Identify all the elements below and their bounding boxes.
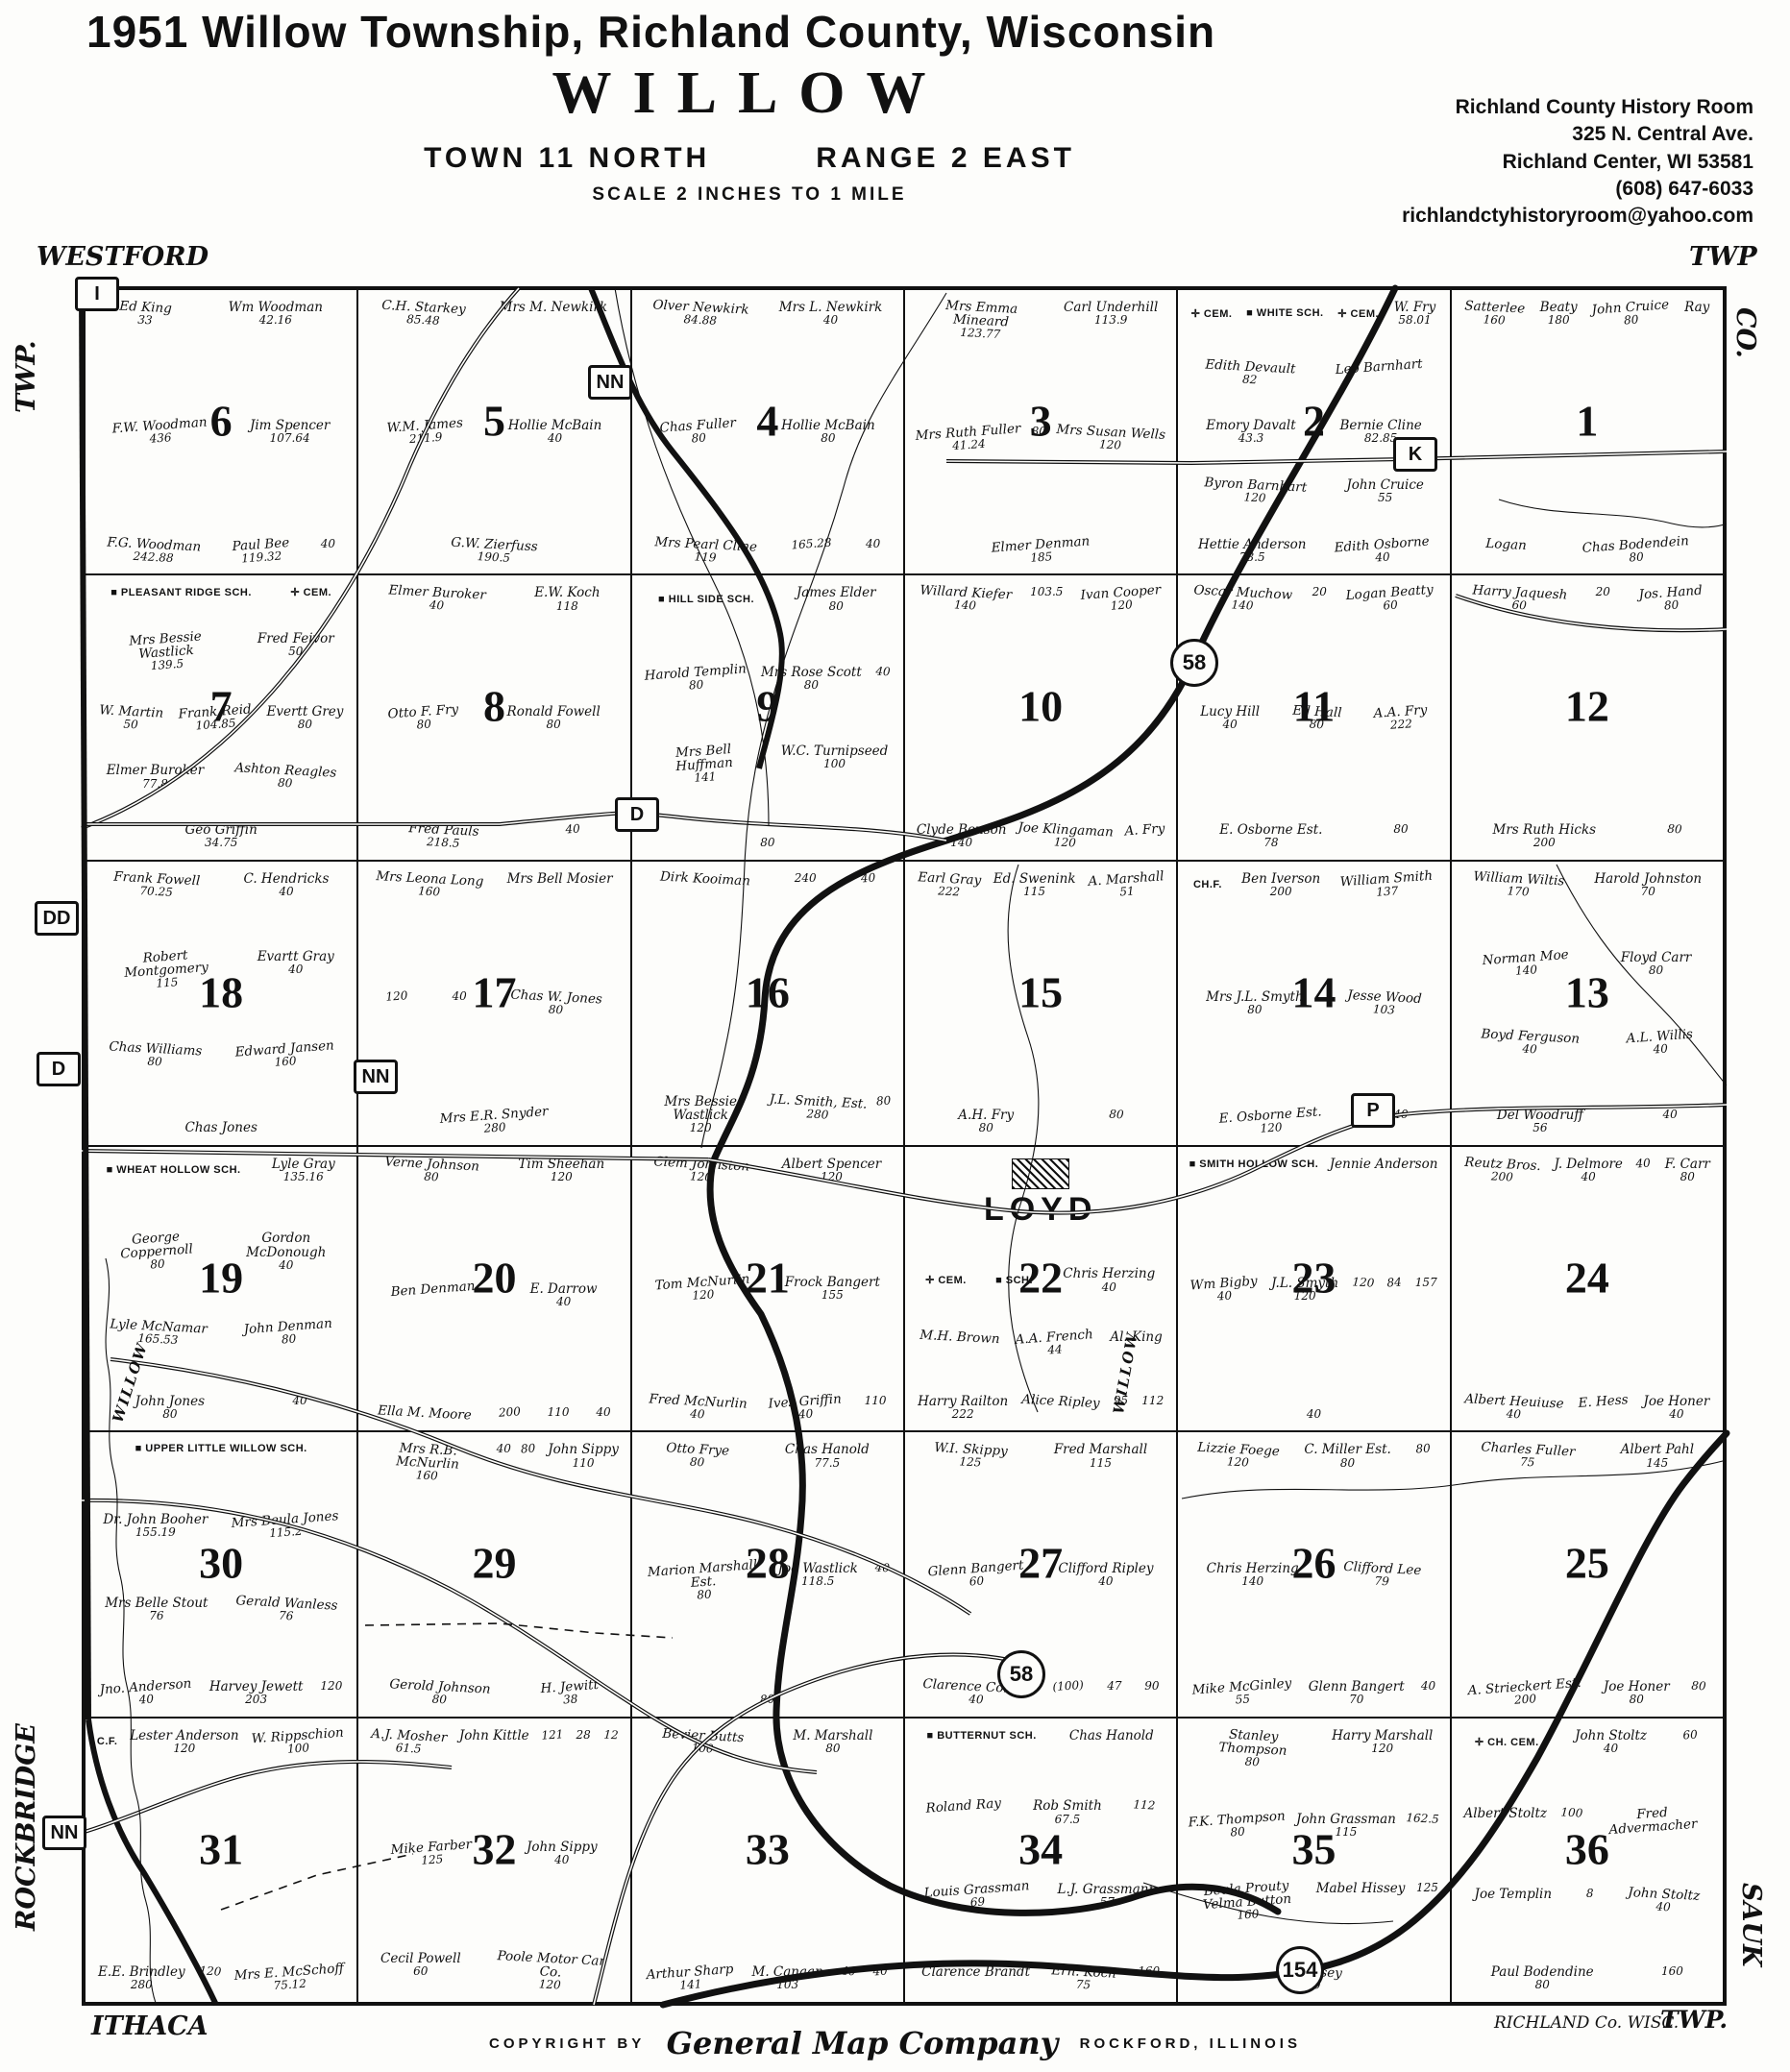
parcel-list: Olver Newkirk84.88Mrs L. Newkirk40Chas F… xyxy=(632,290,903,573)
parcel-list: William Wiltis170Harold Johnston70Norman… xyxy=(1452,862,1723,1145)
parcel-list: ✛ CEM.■ WHITE SCH.✛ CEM.W. Fry58.01Edith… xyxy=(1178,290,1449,573)
parcel-label: Carl Underhill113.9 xyxy=(1064,301,1158,340)
parcel-label: John Cruice80 xyxy=(1591,298,1670,329)
parcel-label: Edith Devault82 xyxy=(1204,357,1295,388)
acreage-value: 203 xyxy=(209,1694,304,1706)
acreage-label: 40 xyxy=(872,1965,889,1992)
parcel-label: Jim Spencer107.64 xyxy=(250,419,330,445)
acreage-value: 113.9 xyxy=(1064,314,1158,327)
acreage-value: 119.32 xyxy=(233,549,290,566)
section-8: 8Elmer Buroker40E.W. Koch118Otto F. Fry8… xyxy=(357,574,630,860)
owner-name: J.L. Smyth xyxy=(1271,1277,1338,1290)
parcel-label: Jennie Anderson xyxy=(1330,1158,1438,1171)
owner-name: Mrs L. Newkirk xyxy=(779,301,883,314)
acreage-value: 80 xyxy=(507,719,601,731)
acreage-value: 40 xyxy=(527,1854,598,1866)
owner-name: Mrs J.L. Smyth xyxy=(1206,990,1304,1004)
parcel-label: Mrs Pearl Cline119 xyxy=(654,535,758,566)
section-9: 9■ HILL SIDE SCH.James Elder80Harold Tem… xyxy=(631,574,904,860)
acreage-label: 8 xyxy=(1586,1888,1594,1914)
owner-name: Emory Davalt xyxy=(1206,419,1295,432)
parcel-label: Mrs Bell Huffman141 xyxy=(646,741,764,788)
acreage-value: 80 xyxy=(1206,1004,1304,1016)
acreage-value: 160 xyxy=(1138,1965,1160,1978)
owner-name: Del Woodruff xyxy=(1497,1109,1583,1122)
owner-name: A.H. Fry xyxy=(958,1109,1014,1122)
owner-name: Hollie McBain xyxy=(781,419,875,432)
parcel-label: Jno. Anderson40 xyxy=(99,1677,192,1709)
acreage-label: 162.5 xyxy=(1405,1812,1439,1840)
parcel-label: John Grassman115 xyxy=(1296,1813,1396,1839)
parcel-label: Rob Smith67.5 xyxy=(1033,1799,1102,1825)
owner-name: Paul Bodendine xyxy=(1491,1965,1594,1979)
acreage-label: 80 xyxy=(1393,823,1408,849)
parcel-label: Chas Jones xyxy=(184,1121,257,1134)
parcel-label: W.I. Skippy125 xyxy=(933,1441,1008,1471)
acreage-label: 80 xyxy=(521,1443,538,1483)
acreage-value: 77.8 xyxy=(107,778,205,791)
parcel-label: E.E. Brindley280 xyxy=(98,1965,185,1991)
route-shield-NN-mid: NN xyxy=(354,1060,398,1094)
acreage-value: 118.5 xyxy=(778,1575,858,1588)
acreage-value: 78 xyxy=(1219,837,1322,849)
acreage-label: 125 xyxy=(1416,1882,1438,1921)
owner-name: A. Fry xyxy=(1124,821,1165,838)
parcel-label: James Elder80 xyxy=(797,586,876,612)
owner-name: Fred Advermacher xyxy=(1594,1803,1711,1839)
parcel-label: Arthur Sharp141 xyxy=(646,1962,735,1994)
acreage-value: 103.5 xyxy=(1030,586,1063,598)
parcel-label: C.H. Starkey85.48 xyxy=(380,299,466,329)
parcel-label: Hollie McBain40 xyxy=(508,419,602,445)
cemetery-icon-label: ✛ CEM. xyxy=(290,586,331,598)
town-label: TOWN 11 NORTH xyxy=(424,142,710,175)
acreage-value: 40 xyxy=(1575,1743,1647,1755)
acreage-value: 200 xyxy=(1241,886,1320,898)
acreage-value: 80 xyxy=(521,1443,536,1456)
acreage-label: 12 xyxy=(602,1728,619,1755)
parcel-label: Joe Templin xyxy=(1475,1888,1553,1914)
parcel-label: Glenn Bangert70 xyxy=(1309,1680,1405,1706)
parcel-label: Ben Denman xyxy=(391,1280,478,1311)
parcel-label: Reutz Bros.200 xyxy=(1463,1156,1541,1185)
parcel-label: Clarence Brandt xyxy=(921,1965,1030,1991)
parcel-label: W. Fry58.01 xyxy=(1394,301,1436,327)
acreage-value: 90 xyxy=(1144,1680,1159,1693)
parcel-label: W.C. Turnipseed100 xyxy=(781,744,889,784)
map-company-name: General Map Company xyxy=(667,2025,1059,2061)
parcel-label: Edith Osborne40 xyxy=(1334,534,1431,567)
school-icon-label: ■ SCH. xyxy=(995,1275,1033,1286)
parcel-label: Chas Williams80 xyxy=(108,1040,202,1071)
parcel-label: Byron Barnhart120 xyxy=(1203,475,1307,506)
parcel-label: Otto F. Fry80 xyxy=(387,702,459,733)
owner-name: Tim Sheehan xyxy=(518,1158,604,1171)
parcel-label: Evartt Gray40 xyxy=(257,950,334,989)
parcel-list: CH.F.Ben Iverson200William Smith137Mrs J… xyxy=(1178,862,1449,1145)
parcel-label: Chris Herzing40 xyxy=(1063,1267,1155,1293)
parcel-label: Clifford Lee79 xyxy=(1343,1560,1422,1590)
acreage-label: 40 xyxy=(565,822,581,849)
acreage-value: 145 xyxy=(1621,1457,1694,1470)
parcel-label: Geo Griffin34.75 xyxy=(185,823,257,849)
acreage-value: 107.64 xyxy=(250,432,330,445)
acreage-value: 40 xyxy=(1421,1680,1435,1693)
section-15: 15Earl Gray222Ed. Swenink115A. Marshall5… xyxy=(904,861,1177,1146)
contact-line: richlandctyhistoryroom@yahoo.com xyxy=(1402,203,1753,230)
section-33: 33Bevier Butts100M. Marshall80Arthur Sha… xyxy=(631,1718,904,2003)
owner-name: W. Fry xyxy=(1394,301,1436,314)
owner-name: Mrs Rose Scott xyxy=(761,666,862,679)
owner-name: E. Darrow xyxy=(530,1282,598,1296)
parcel-label: Mrs L. Newkirk40 xyxy=(779,301,883,327)
section-16: 16Dirk Kooiman24040Mrs Bessie Wastlick12… xyxy=(631,861,904,1146)
acreage-value: 280 xyxy=(98,1979,185,1991)
owner-name: John Sippy xyxy=(527,1840,598,1854)
acreage-value: 40 xyxy=(866,538,880,550)
acreage-value: 40 xyxy=(860,871,875,885)
acreage-value: 60 xyxy=(380,1965,461,1978)
acreage-label: 40 xyxy=(1421,1680,1435,1706)
parcel-list: Ed King33Wm Woodman42.16F.W. Woodman436J… xyxy=(86,290,356,573)
route-shield-DD: DD xyxy=(35,901,79,936)
acreage-label: 160 xyxy=(1661,1965,1683,1991)
edge-label-twp-topright: TWP xyxy=(1689,242,1757,272)
owner-name: Clarence Brandt xyxy=(921,1965,1030,1979)
owner-name: M. Canaan xyxy=(752,1965,823,1979)
parcel-label: F.K. Thompson80 xyxy=(1189,1809,1287,1841)
acreage-value: 120 xyxy=(199,1965,222,1979)
parcel-label: A.A. French44 xyxy=(1015,1329,1094,1359)
owner-name: Evertt Grey xyxy=(266,705,343,719)
acreage-label: 40 xyxy=(321,538,335,564)
parcel-list: Otto Frye80Chas Hanold77.5Marion Marshal… xyxy=(632,1432,903,1716)
owner-name: Harry Railton xyxy=(918,1395,1008,1408)
owner-name: Floyd Carr xyxy=(1621,951,1692,964)
parcel-label: Olver Newkirk84.88 xyxy=(652,298,750,329)
owner-name: Mrs Bell Mosier xyxy=(507,872,613,886)
parcel-label: Mabel Hissey xyxy=(1316,1882,1406,1921)
parcel-list: Frank Fowell70.25C. Hendricks40Robert Mo… xyxy=(86,862,356,1145)
parcel-label: Jesse Wood103 xyxy=(1347,988,1423,1018)
owner-name: Elmer Buroker xyxy=(107,764,205,777)
parcel-label: Lizzie Foege120 xyxy=(1196,1441,1280,1471)
route-shield-D-west: D xyxy=(37,1052,81,1086)
parcel-label: Ed Hall80 xyxy=(1291,703,1342,731)
acreage-value: 80 xyxy=(1304,1457,1390,1470)
acreage-value: 80 xyxy=(797,600,876,613)
contact-block: Richland County History Room 325 N. Cent… xyxy=(1402,94,1753,231)
parcel-label: John Jones80 xyxy=(135,1395,205,1421)
parcel-label: Lyle McNamar165.53 xyxy=(109,1317,208,1348)
parcel-label: H. Jewitt38 xyxy=(540,1678,600,1708)
acreage-value: 80 xyxy=(1393,823,1408,836)
section-grid: 6Ed King33Wm Woodman42.16F.W. Woodman436… xyxy=(85,289,1724,2003)
acreage-value: 56 xyxy=(1497,1122,1583,1134)
acreage-value: 40 xyxy=(1063,1281,1155,1294)
acreage-label: 200 xyxy=(498,1405,521,1421)
section-36: 36✛ CH. CEM.John Stoltz4060Albert Stoltz… xyxy=(1451,1718,1724,2003)
acreage-value: 67.5 xyxy=(1033,1814,1102,1826)
section-6: 6Ed King33Wm Woodman42.16F.W. Woodman436… xyxy=(85,289,357,574)
route-shield-K: K xyxy=(1393,437,1437,472)
parcel-label: Lester Anderson120 xyxy=(130,1729,238,1755)
acreage-value: 8 xyxy=(1586,1888,1594,1900)
parcel-label: A.A. Fry222 xyxy=(1373,703,1429,733)
edge-label-twp-left: TWP. xyxy=(12,340,41,413)
acreage-value: 76 xyxy=(105,1610,208,1622)
parcel-list: C.F.Lester Anderson120W. Rippschion100E.… xyxy=(86,1719,356,2002)
parcel-label: Albert Spencer120 xyxy=(782,1158,881,1183)
parcel-label: Chas Hanold xyxy=(1069,1729,1154,1743)
owner-name: Harold Johnston xyxy=(1594,872,1702,886)
acreage-value: 80 xyxy=(876,1095,892,1109)
acreage-value: 20 xyxy=(1312,586,1327,598)
parcel-label: Mrs Leona Long160 xyxy=(376,869,484,901)
parcel-label: Mrs R.B. McNurlin160 xyxy=(369,1440,486,1485)
owner-name: Hollie McBain xyxy=(508,419,602,432)
parcel-label: Chas Bodendein80 xyxy=(1582,534,1690,567)
acreage-value: 80 xyxy=(1491,1979,1594,1991)
cemetery-icon-label: ✛ CEM. xyxy=(1191,307,1233,320)
acreage-value: 70 xyxy=(1309,1694,1405,1706)
acreage-value: 28 xyxy=(576,1729,591,1742)
acreage-value: 50 xyxy=(257,646,334,658)
section-28: 28Otto Frye80Chas Hanold77.5Marion Marsh… xyxy=(631,1431,904,1717)
acreage-value: 40 xyxy=(229,1259,344,1272)
parcel-label: A. Marshall51 xyxy=(1088,869,1165,900)
acreage-value: 40 xyxy=(872,1965,888,1979)
edge-label-co-right: CO. xyxy=(1730,307,1760,358)
parcel-list: Lizzie Foege120C. Miller Est.8080Chris H… xyxy=(1178,1432,1449,1716)
acreage-value: 40 xyxy=(497,1443,511,1455)
owner-name: C. Miller Est. xyxy=(1304,1443,1390,1456)
acreage-label: 120 xyxy=(198,1965,221,1992)
acreage-value: 34.75 xyxy=(185,837,257,849)
parcel-label: Mike McGinley55 xyxy=(1191,1676,1292,1709)
acreage-label: 47 xyxy=(1107,1680,1121,1706)
parcel-label: Mrs Susan Wells120 xyxy=(1056,423,1166,454)
parcel-label: Albert Stoltz xyxy=(1463,1807,1547,1834)
parcel-label: John Sippy110 xyxy=(548,1443,619,1482)
parcel-label: A.J. Mosher61.5 xyxy=(370,1727,447,1757)
owner-name: Chris Herzing xyxy=(1207,1562,1299,1575)
parcel-label: Marion Marshall Est.80 xyxy=(645,1557,763,1604)
page-title: 1951 Willow Township, Richland County, W… xyxy=(86,6,1215,58)
acreage-value: 40 xyxy=(779,314,883,327)
parcel-label: Glenn Bangert60 xyxy=(927,1558,1025,1591)
acreage-label: 120 xyxy=(1351,1276,1374,1303)
parcel-label: Chas Hanold77.5 xyxy=(785,1443,870,1469)
contact-line: Richland Center, WI 53581 xyxy=(1402,149,1753,176)
parcel-list: Oscar Muchow14020Logan Beatty60Lucy Hill… xyxy=(1178,575,1449,859)
parcel-label: Clyde Benson140 xyxy=(917,823,1007,849)
parcel-list: LOYD✛ CEM.■ SCH.Chris Herzing40M.H. Brow… xyxy=(905,1147,1176,1430)
acreage-value: 80 xyxy=(793,1743,872,1755)
acreage-value: 40 xyxy=(596,1406,610,1419)
section-22: 22LOYD✛ CEM.■ SCH.Chris Herzing40M.H. Br… xyxy=(904,1146,1177,1431)
section-3: 3Mrs Emma Mineard123.77Carl Underhill113… xyxy=(904,289,1177,574)
owner-name: Albert Stoltz xyxy=(1463,1807,1547,1820)
owner-name: Frock Bangert xyxy=(785,1276,880,1289)
owner-name: Cecil Powell xyxy=(380,1952,461,1965)
acreage-value: (100) xyxy=(1052,1679,1084,1694)
acreage-value: 157 xyxy=(1415,1277,1437,1289)
acreage-value: 40 xyxy=(1393,1109,1408,1121)
acreage-label: 80 xyxy=(1691,1680,1707,1707)
parcel-label: Mrs M. Newkirk xyxy=(500,301,607,327)
acreage-label: 84 xyxy=(1386,1277,1403,1304)
parcel-list: Willard Kiefer140103.5Ivan Cooper120Clyd… xyxy=(905,575,1176,859)
parcel-label: Gerold Johnson80 xyxy=(389,1677,492,1708)
acreage-label: 160 xyxy=(1138,1965,1160,1991)
parcel-label: Norman Moe140 xyxy=(1482,948,1570,980)
acreage-value: 115 xyxy=(993,886,1076,898)
owner-name: Joe Templin xyxy=(1475,1888,1553,1901)
acreage-value: 40 xyxy=(1200,719,1260,731)
parcel-label: Oscar Muchow140 xyxy=(1193,584,1293,615)
parcel-label: Clifford Ripley40 xyxy=(1058,1562,1153,1588)
acreage-value: 47 xyxy=(1107,1680,1121,1693)
parcel-label: Floyd Carr80 xyxy=(1621,951,1692,977)
acreage-label: 103.5 xyxy=(1030,586,1063,612)
cemetery-icon-label: ✛ CEM. xyxy=(1337,307,1379,320)
parcel-label: Satterlee160 xyxy=(1464,299,1526,328)
footer: COPYRIGHT BY General Map Company ROCKFOR… xyxy=(0,2025,1790,2061)
acreage-value: 12 xyxy=(603,1728,619,1741)
acreage-label: (100) xyxy=(1052,1679,1085,1707)
parcel-label: Evertt Grey80 xyxy=(266,705,343,731)
owner-name: Roland Ray xyxy=(925,1797,1001,1816)
acreage-value: 103 xyxy=(752,1979,823,1991)
parcel-label: Roland Ray xyxy=(925,1797,1002,1828)
acreage-value: 40 xyxy=(1643,1408,1709,1421)
owner-name: Ben Iverson xyxy=(1241,872,1320,886)
owner-name: Clyde Benson xyxy=(917,823,1007,837)
acreage-label: 80 xyxy=(760,1694,775,1707)
acreage-label: 40 xyxy=(1393,1109,1408,1134)
acreage-value: 162.5 xyxy=(1406,1812,1439,1825)
parcel-label: Harold Johnston70 xyxy=(1594,872,1702,898)
owner-name: Wm Woodman xyxy=(229,301,323,314)
school-icon-label: ■ WHITE SCH. xyxy=(1246,307,1323,319)
parcel-label: Ives Griffin40 xyxy=(769,1392,844,1423)
acreage-value: 58.01 xyxy=(1394,314,1436,327)
contact-line: (608) 647-6033 xyxy=(1402,176,1753,203)
parcel-label: Earl Gray222 xyxy=(917,870,981,899)
parcel-list: Mrs R.B. McNurlin1604080John Sippy110Ger… xyxy=(358,1432,629,1716)
owner-name: John Cruice xyxy=(1346,478,1424,492)
section-13: 13William Wiltis170Harold Johnston70Norm… xyxy=(1451,861,1724,1146)
parcel-label: E.W. Koch118 xyxy=(534,586,600,612)
owner-name: Evartt Gray xyxy=(257,950,334,963)
parcel-list: ■ HILL SIDE SCH.James Elder80Harold Temp… xyxy=(632,575,903,859)
acreage-label: 40 xyxy=(860,871,875,886)
parcel-label: A.L. Willis40 xyxy=(1626,1028,1694,1059)
owner-name: Alice Ripley xyxy=(1021,1392,1100,1409)
parcel-label: Frank Reid104.85 xyxy=(178,702,253,733)
parcel-label: E. Hess xyxy=(1578,1393,1630,1422)
acreage-label: 40 xyxy=(873,1561,890,1601)
acreage-label: 40 xyxy=(866,538,880,564)
acreage-value: 80 xyxy=(266,719,343,731)
parcel-list: ✛ CH. CEM.John Stoltz4060Albert Stoltz10… xyxy=(1452,1719,1723,2002)
parcel-list: Dirk Kooiman24040Mrs Bessie Wastlick120J… xyxy=(632,862,903,1145)
owner-name: M.H. Brown xyxy=(920,1329,1000,1347)
parcel-label: Elmer Denman185 xyxy=(991,534,1091,567)
parcel-label: W.M. James211.9 xyxy=(386,417,464,448)
acreage-value: 120 xyxy=(1271,1290,1338,1303)
scale-note: SCALE 2 INCHES TO 1 MILE xyxy=(365,184,1134,206)
plat-map-sheet: 1951 Willow Township, Richland County, W… xyxy=(0,0,1790,2072)
parcel-label: Mrs Bessie Wastlick120 xyxy=(643,1095,758,1134)
acreage-value: 222 xyxy=(918,1408,1008,1421)
parcel-label: Ben Iverson200 xyxy=(1241,872,1320,898)
acreage-value: 40 xyxy=(1662,1109,1677,1121)
parcel-label: Lyle Gray135.16 xyxy=(272,1158,335,1183)
acreage-value: 20 xyxy=(1596,586,1610,598)
section-32: 32A.J. Mosher61.5John Kittle1212812Mike … xyxy=(357,1718,630,2003)
section-29: 29Mrs R.B. McNurlin1604080John Sippy110G… xyxy=(357,1431,630,1717)
section-18: 18Frank Fowell70.25C. Hendricks40Robert … xyxy=(85,861,357,1146)
parcel-label: Paul Bee119.32 xyxy=(232,536,290,566)
section-31: 31C.F.Lester Anderson120W. Rippschion100… xyxy=(85,1718,357,2003)
parcel-label: Del Woodruff56 xyxy=(1497,1109,1583,1134)
contact-line: Richland County History Room xyxy=(1402,94,1753,121)
parcel-label: Ashton Reagles80 xyxy=(233,762,336,792)
acreage-value: 40 xyxy=(841,1965,856,1978)
owner-name: C. Hendricks xyxy=(243,872,329,886)
parcel-list: Verne Johnson80Tim Sheehan120Ben DenmanE… xyxy=(358,1147,629,1430)
acreage-value: 112 xyxy=(1141,1395,1164,1407)
acreage-label: 120 xyxy=(385,989,409,1016)
edge-label-westford: WESTFORD xyxy=(37,242,208,272)
parcel-label: Albert Pahl145 xyxy=(1621,1443,1694,1469)
landmark-label: CH.F. xyxy=(1193,879,1222,890)
parcel-label: Wm Woodman42.16 xyxy=(229,301,323,327)
parcel-label: F. Carr80 xyxy=(1665,1158,1710,1183)
route-shield-I: I xyxy=(75,277,119,311)
parcel-label: L.J. Grassmann57 xyxy=(1058,1883,1158,1909)
parcel-label: John Stoltz40 xyxy=(1575,1729,1647,1755)
school-icon-label: ■ UPPER LITTLE WILLOW SCH. xyxy=(135,1443,307,1454)
acreage-value: 80 xyxy=(135,1408,205,1421)
acreage-value: 80 xyxy=(761,679,862,692)
parcel-list: Bevier Butts100M. Marshall80Arthur Sharp… xyxy=(632,1719,903,2002)
acreage-value: 110 xyxy=(548,1406,570,1419)
owner-name: John Stoltz xyxy=(1575,1729,1647,1743)
village-loyd: LOYD xyxy=(911,1158,1170,1229)
owner-name: Joe Honer xyxy=(1604,1680,1670,1694)
parcel-label: Fred Advermacher xyxy=(1594,1803,1711,1839)
parcel-label: Bevier Butts100 xyxy=(662,1726,745,1756)
owner-name: Jim Spencer xyxy=(250,419,330,432)
section-23: 23■ SMITH HOLLOW SCH.Jennie AndersonWm B… xyxy=(1177,1146,1450,1431)
owner-name: Albert Pahl xyxy=(1621,1443,1694,1456)
parcel-label: Hollie McBain80 xyxy=(781,419,875,445)
acreage-value: 120 xyxy=(643,1122,758,1134)
parcel-label: E. Osborne Est.78 xyxy=(1219,823,1322,849)
acreage-value: 140 xyxy=(917,837,1007,849)
acreage-value: 80 xyxy=(1621,964,1692,977)
copyright-label: COPYRIGHT BY xyxy=(489,2035,645,2052)
parcel-list: ■ PLEASANT RIDGE SCH.✛ CEM.Mrs Bessie Wa… xyxy=(86,575,356,859)
parcel-label: Tim Sheehan120 xyxy=(518,1158,604,1183)
parcel-label: Verne Johnson80 xyxy=(383,1155,479,1185)
parcel-label: Mrs Ruth Fuller41.24 xyxy=(915,423,1022,455)
acreage-label: 165.28 xyxy=(791,536,833,565)
acreage-value: 112 xyxy=(1133,1799,1156,1813)
